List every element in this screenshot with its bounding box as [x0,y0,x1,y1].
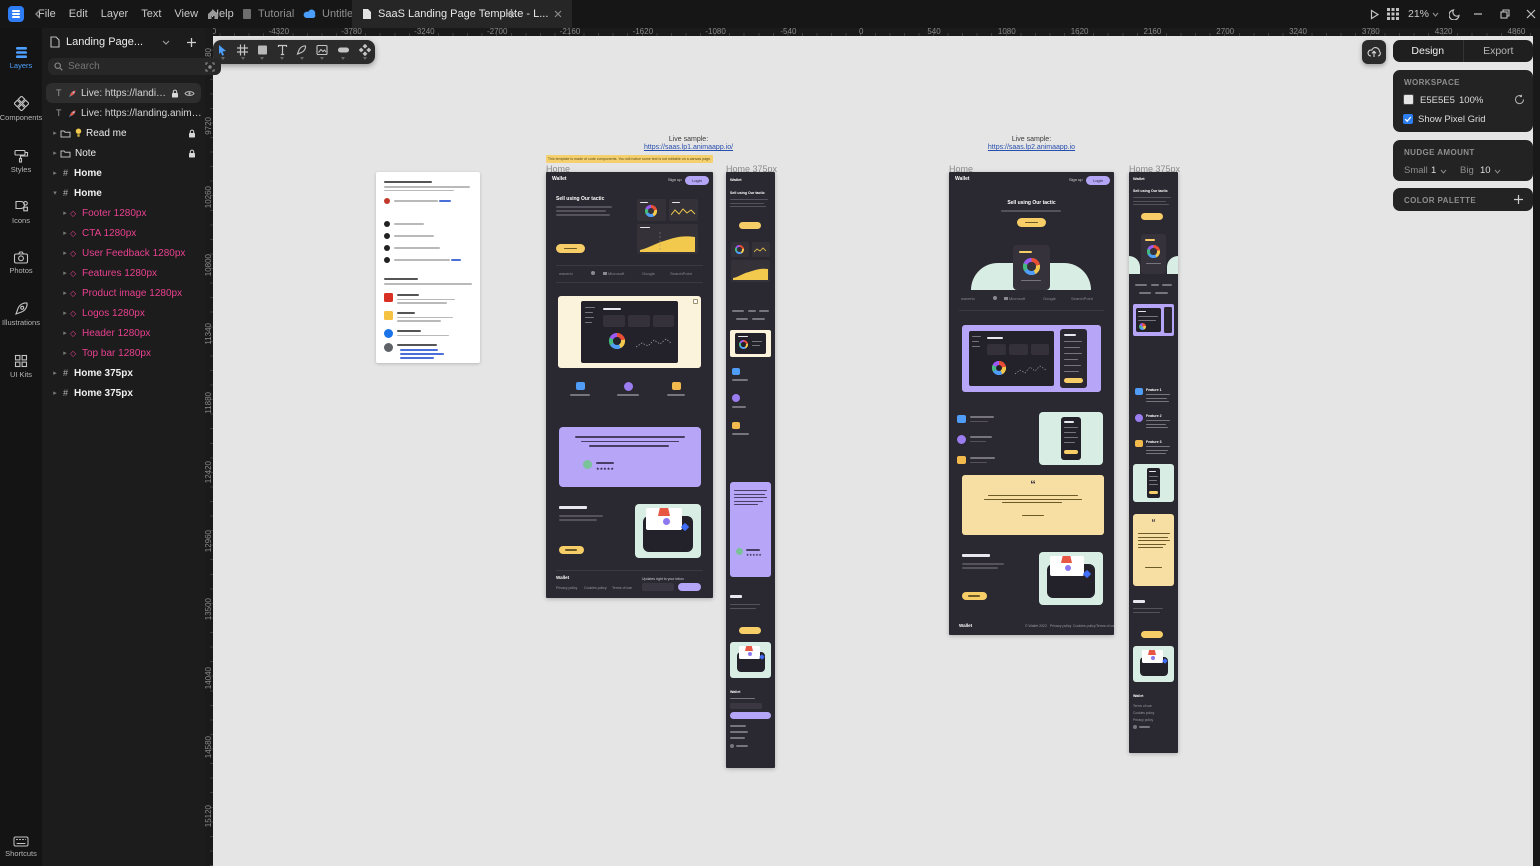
workspace-opacity[interactable]: 100% [1459,95,1483,106]
subscribe-button [730,712,771,719]
step-icon [384,233,390,239]
cta-phone-card [1039,552,1103,605]
ruler-label: 9720 [204,117,213,135]
layer-row-home-2[interactable]: ▾ # Home [42,183,205,203]
readme-note-card[interactable] [376,172,480,363]
logo-google: Google [642,271,655,276]
expand-caret-icon[interactable]: ▸ [50,169,60,177]
chevron-down-icon[interactable] [1494,169,1501,174]
lightbulb-icon [75,128,82,138]
tab-active[interactable]: SaaS Landing Page Template - L... [352,0,572,28]
login-button: Login [1086,176,1110,185]
layer-row-features[interactable]: ▸◇Features 1280px [42,263,205,283]
new-tab-button[interactable] [506,8,517,19]
rocket-icon [68,109,77,118]
nudge-title: NUDGE AMOUNT [1404,148,1475,157]
nudge-small-value[interactable]: 1 [1431,165,1436,176]
eye-icon[interactable] [184,90,195,97]
feature-title: Feature 3 [1146,440,1162,444]
ruler-label: 0 [859,27,863,36]
template-banner[interactable]: This template is made of code components… [546,155,713,163]
ruler-label: -540 [780,27,796,36]
feature-title: Feature 1 [1146,388,1162,392]
cta-phone-card [635,504,701,558]
menu-edit[interactable]: Edit [69,8,88,20]
feature-phone-card [1133,464,1174,502]
rectangle-tool[interactable] [257,44,268,60]
quote-mark: “ [962,479,1104,491]
project-name[interactable]: Landing Page... [66,36,156,48]
cta-phone-card [730,642,771,678]
app-window: File Edit Layer Text View Help Tutorial … [0,0,1540,866]
quote-card: “ [962,475,1104,535]
ruler-label: 14040 [204,667,213,689]
tab-design[interactable]: Design [1393,40,1464,62]
ruler-label: 540 [927,27,940,36]
lock-icon[interactable] [188,149,196,158]
menu-text[interactable]: Text [141,8,161,20]
feature-icon-wallet [576,382,585,390]
color-palette-section: COLOR PALETTE [1393,188,1533,211]
ruler-label: 15120 [204,805,213,827]
rail-item-icons[interactable]: Icons [0,200,42,225]
note-blue-icon [384,329,393,338]
workspace-title: WORKSPACE [1404,78,1460,87]
product-image-section [558,296,701,368]
layer-row-home-375-1[interactable]: ▸# Home 375px [42,363,205,383]
feature-icon-badge [957,435,966,444]
layer-row-home-375-2[interactable]: ▸# Home 375px [42,383,205,403]
add-color-button[interactable] [1513,194,1524,205]
expand-caret-icon[interactable]: ▸ [50,369,60,377]
cta-button [739,627,761,634]
product-image-section [962,325,1101,392]
select-tool[interactable] [217,44,228,60]
rail-item-illustrations[interactable]: Illustrations [0,301,42,327]
live-sample-caption: Live sample: [949,136,1114,143]
hero-phone-mockup [1013,245,1050,290]
cta-phone-card [1133,646,1174,682]
image-tool[interactable] [316,44,328,60]
expand-caret-icon[interactable]: ▸ [50,149,60,157]
layer-row-cta[interactable]: ▸◇CTA 1280px [42,223,205,243]
artboard-home-desktop-1[interactable]: Wallet Sign up Login Sell using Our tact… [546,172,713,598]
menu-view[interactable]: View [174,8,198,20]
feature-icon-box [732,422,740,429]
input-tool[interactable] [337,44,350,60]
feature-icon-box [957,456,966,464]
close-window-button[interactable] [1519,2,1540,26]
logo-searchpoint: SearchPoint [670,271,692,276]
workspace-color-hex[interactable]: E5E5E5 [1420,95,1455,106]
hero-cta-button [1141,213,1163,220]
search-box[interactable] [48,58,221,75]
hero-cta-button [1017,218,1046,227]
ruler-label: 3240 [1289,27,1307,36]
scan-filter-icon[interactable] [205,62,215,72]
rail-item-shortcuts[interactable]: Shortcuts [0,836,42,858]
layer-row-product-image[interactable]: ▸◇Product image 1280px [42,283,205,303]
nudge-section: NUDGE AMOUNT Small 1 Big 10 [1393,140,1533,181]
cta-button [1141,631,1163,638]
publish-button[interactable] [1362,40,1386,64]
artboard-home-desktop-2[interactable]: Wallet Sign up Login Sell using Our tact… [949,172,1114,635]
ruler-label: -3780 [341,27,361,36]
email-input [642,583,674,591]
artboard-home-mobile-2[interactable]: Wallet Sell using Our tactic [1129,172,1178,753]
feature-phone-card [1039,412,1103,465]
window-right-edge [1533,28,1540,866]
design-export-tabs: Design Export [1393,40,1533,62]
ruler-label: 11340 [204,323,213,345]
ruler-label: 2700 [1216,27,1234,36]
layer-row-user-feedback[interactable]: ▸◇User Feedback 1280px [42,243,205,263]
area-chart-card [731,260,770,282]
product-image-section [730,330,771,357]
note-yellow-icon [384,311,393,320]
feature-icon-badge [732,394,740,402]
lock-icon[interactable] [188,129,196,138]
area-chart-card [637,224,698,254]
ruler-label: 1620 [1071,27,1089,36]
palette-title: COLOR PALETTE [1404,196,1476,205]
ruler-label: 1080 [998,27,1016,36]
feature-icon-box [1135,440,1143,447]
layer-row-home-1[interactable]: ▸ # Home [42,163,205,183]
frame-tool[interactable] [237,44,248,60]
ruler-label: 12960 [204,530,213,552]
testimonial-card: ★★★★★ [730,482,771,577]
ruler-label: 13500 [204,598,213,620]
restore-window-button[interactable] [1493,2,1517,26]
lock-icon[interactable] [171,89,179,98]
dark-mode-icon[interactable] [1443,2,1467,26]
logo-apple-icon [591,271,595,275]
back-icon[interactable] [26,2,50,26]
feature-icon-wallet [957,415,966,423]
feature-icon-wallet [1135,388,1143,395]
app-logo[interactable] [8,6,24,22]
note-gray-icon [384,343,393,352]
donut-chart-card [731,242,749,257]
pen-tool[interactable] [296,44,307,60]
star-rating: ★★★★★ [596,466,614,471]
nudge-big-label: Big [1460,165,1474,176]
rocket-icon [68,89,77,98]
expand-caret-icon[interactable]: ▸ [50,389,60,397]
hero-title: Sell using Our tactic [556,196,604,202]
layer-row-top-bar[interactable]: ▸◇Top bar 1280px [42,343,205,363]
ruler-label: 4860 [1507,27,1525,36]
avatar [583,460,592,469]
logo-microsoft-icon [1004,297,1008,301]
ruler-label: -3240 [414,27,434,36]
site-logo: Wallet [552,176,567,182]
chevron-down-icon[interactable] [1440,169,1447,174]
ruler-label: -1620 [633,27,653,36]
ruler-label: 11880 [204,392,213,414]
feature-title: Feature 2 [1146,414,1162,418]
logo-apple-icon [993,296,997,300]
email-input [730,703,762,709]
hero-title: Sell using Our tactic [949,200,1114,206]
layer-row-footer[interactable]: ▸◇Footer 1280px [42,203,205,223]
menu-layer[interactable]: Layer [101,8,129,20]
ruler-label: 2160 [1143,27,1161,36]
logo-microsoft-icon [603,272,607,276]
purple-shape [748,652,752,656]
layer-row-note[interactable]: ▸ Note [42,143,205,163]
ruler-label: 12420 [204,461,213,483]
rail-item-photos[interactable]: Photos [0,251,42,275]
hero-cta-button [739,222,761,229]
canvas-toolbar [213,40,375,64]
feature-icon-badge [624,382,633,391]
copyright: © Wallet 2022 [1025,624,1047,628]
hero-phone-mockup [1141,234,1166,274]
layer-row-logos[interactable]: ▸◇Logos 1280px [42,303,205,323]
workspace-section: WORKSPACE E5E5E5 100% Show Pixel Grid [1393,70,1533,132]
red-shape [658,508,670,516]
feature-icon-box [672,382,681,390]
ruler-label: 14580 [204,736,213,758]
ruler-label: -2160 [560,27,580,36]
nudge-big-value[interactable]: 10 [1480,165,1491,176]
red-shape [745,646,753,651]
ruler-label: -2700 [487,27,507,36]
reset-icon[interactable] [1514,94,1525,105]
pixel-grid-label: Show Pixel Grid [1418,114,1486,125]
purple-shape [1065,565,1071,571]
testimonial-card: ★★★★★ [559,427,701,487]
tab-export[interactable]: Export [1464,40,1534,62]
folder-icon [60,149,71,158]
live-sample-link[interactable]: https://saas.lp2.animaapp.io [949,144,1114,151]
left-toolbar: Layers Components Styles Icons Photos Il… [0,28,42,866]
newsletter-label: Updates right to your inbox [642,577,684,581]
artboard-home-mobile-1[interactable]: Wallet Sell using Our tactic [726,172,775,768]
layer-row-header[interactable]: ▸◇Header 1280px [42,323,205,343]
text-tool[interactable] [277,44,288,60]
cta-button [559,546,584,554]
donut-chart-card [637,199,666,221]
ruler-label: 4320 [1435,27,1453,36]
layers-panel: Landing Page... T Live: https://landing.… [42,28,205,866]
nudge-small-label: Small [1404,165,1428,176]
ruler-label: -1080 [705,27,725,36]
live-sample-link[interactable]: https://saas.lp1.animaapp.io/ [605,144,772,151]
line-chart-card [752,242,770,257]
ruler-corner [205,28,213,36]
red-shape [1148,650,1156,655]
mint-arc-left [1129,256,1140,274]
ruler-label: 10260 [204,186,213,208]
component-tool[interactable] [359,44,371,60]
quote-card: “ [1133,514,1174,586]
step-icon [384,221,390,227]
close-box-icon [693,299,698,304]
footer-icon [1133,725,1137,729]
live-sample-caption: Live sample: [605,136,772,143]
horizontal-ruler: -4860-4320-3780-3240-2700-2160-1620-1080… [205,28,1533,36]
step-icon [384,245,390,251]
workspace-color-swatch[interactable] [1403,94,1414,105]
home-icon[interactable] [206,7,220,21]
grid-view-icon[interactable] [1381,2,1405,26]
dashboard-mockup [581,301,678,363]
layer-row-live-2[interactable]: T Live: https://landing.anima... [42,103,205,123]
search-input[interactable] [68,61,200,72]
folder-icon [60,129,71,138]
subscribe-button [678,583,701,591]
layer-row-read-me[interactable]: ▸ Read me [42,123,205,143]
footer-icon [730,744,734,748]
search-icon [54,62,63,71]
document-icon [50,36,60,48]
ruler-label: -4320 [269,27,289,36]
tab-close-icon[interactable] [554,10,562,18]
purple-shape [663,518,670,525]
vertical-ruler: 9180972010260108001134011880124201296013… [205,36,213,866]
zoom-level-dropdown[interactable]: 21% [1408,8,1439,20]
red-shape [1061,556,1072,563]
note-red-icon [384,293,393,302]
expand-caret-icon[interactable]: ▸ [50,129,60,137]
rail-item-components[interactable]: Components [0,96,42,122]
mint-arc-right [1167,256,1178,274]
layer-row-live-1[interactable]: T Live: https://landing... [46,83,201,103]
hero-cta-button [556,244,585,253]
ruler-label: 10800 [204,254,213,276]
ruler-label: 3780 [1362,27,1380,36]
line-chart-card [669,199,698,221]
feature-icon-badge [1135,414,1143,422]
add-page-button[interactable] [186,37,197,48]
step-icon [384,257,390,263]
login-button: Login [685,176,709,185]
pixel-grid-checkbox[interactable] [1403,114,1413,124]
purple-shape [1151,656,1155,660]
minimize-button[interactable] [1466,2,1490,26]
rail-item-layers[interactable]: Layers [0,46,42,70]
project-dropdown-icon[interactable] [162,40,170,45]
collapse-caret-icon[interactable]: ▾ [50,189,60,197]
design-canvas[interactable]: Live sample: https://saas.lp1.animaapp.i… [205,28,1533,866]
product-image-section [1133,304,1174,336]
rail-item-ui-kits[interactable]: UI Kits [0,354,42,379]
logo-waverio: waverio [559,271,573,276]
avatar [736,548,743,555]
feature-icon-wallet [732,368,740,375]
title-bar: File Edit Layer Text View Help Tutorial … [0,0,1540,28]
cta-button [962,592,987,600]
rail-item-styles[interactable]: Styles [0,149,42,174]
logo-microsoft: Microsoft [608,271,624,276]
step-icon [384,198,390,204]
